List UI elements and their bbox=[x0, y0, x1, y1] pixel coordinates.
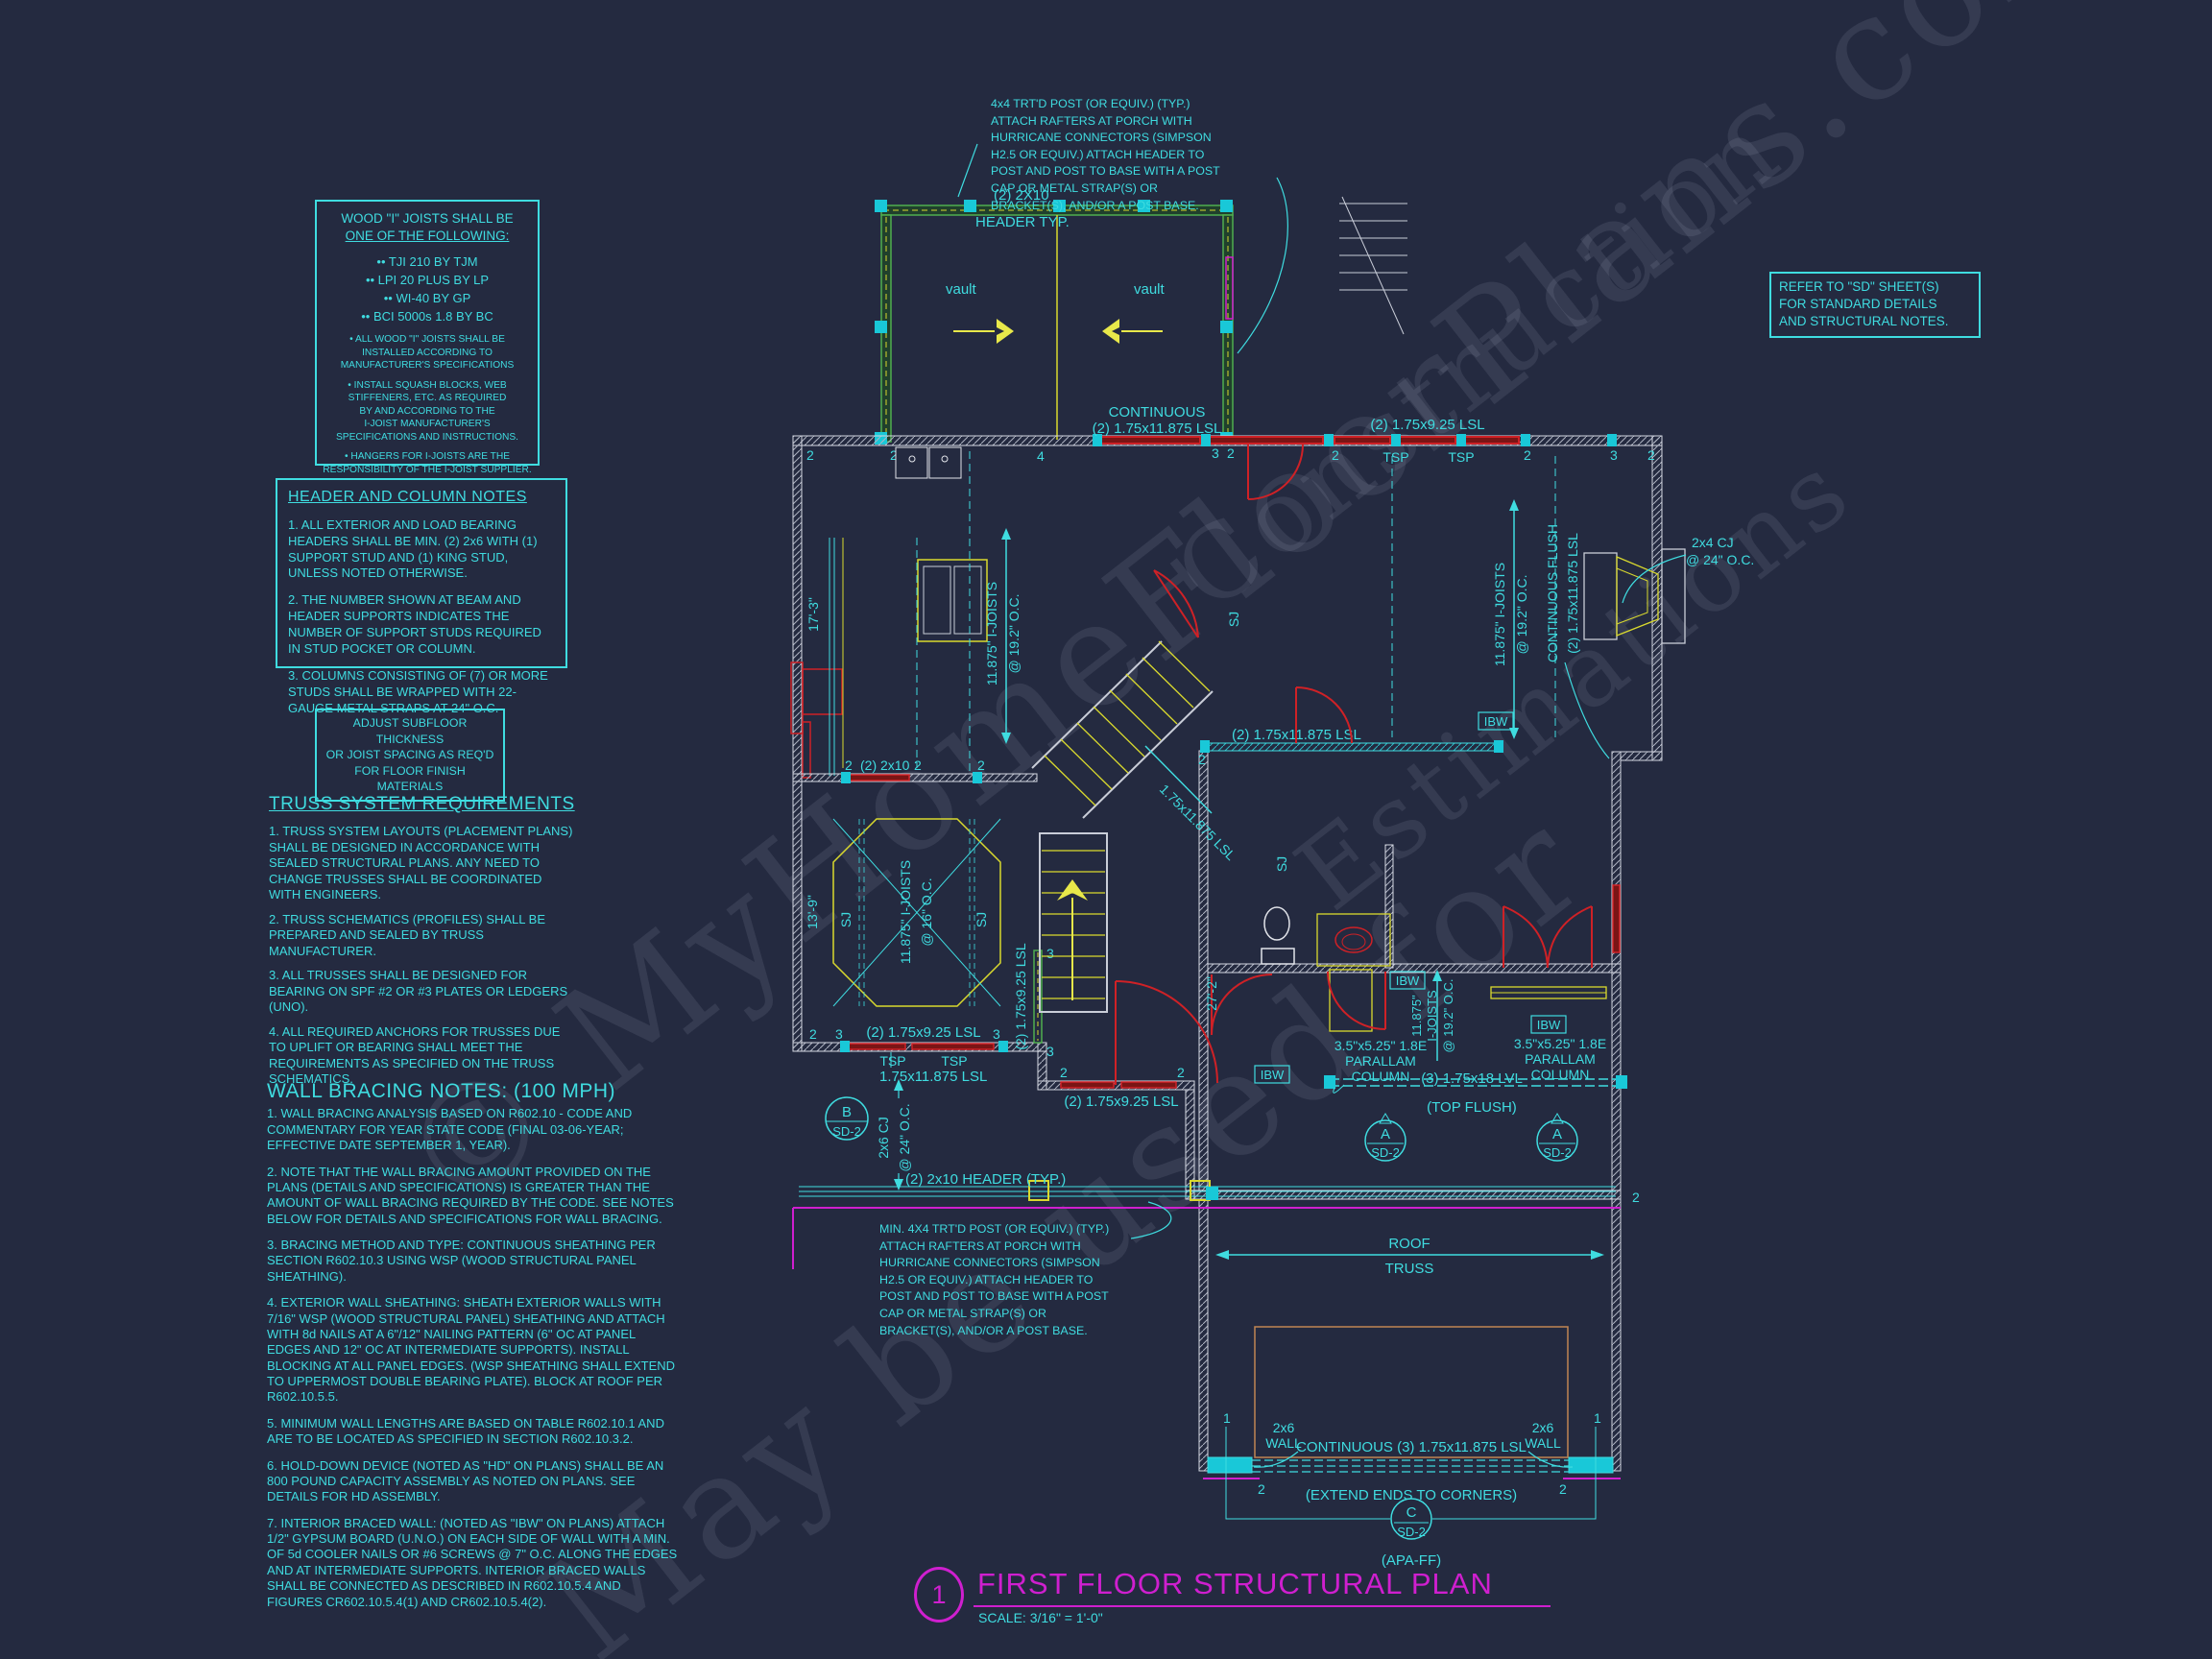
note-item: • INSTALL SQUASH BLOCKS, WEB STIFFENERS,… bbox=[321, 379, 534, 444]
header-label: (2) 2x10 bbox=[860, 757, 910, 773]
note-item: • ALL WOOD "I" JOISTS SHALL BE INSTALLED… bbox=[321, 333, 534, 372]
lsl-label: (2) 1.75x9.25 LSL bbox=[1370, 417, 1484, 433]
svg-text:SD-2: SD-2 bbox=[1371, 1145, 1400, 1160]
header-typ-label: (2) 2x10 HEADER (TYP.) bbox=[905, 1171, 1066, 1188]
svg-text:C: C bbox=[1407, 1504, 1417, 1521]
stud-count: 3 bbox=[993, 1026, 1000, 1042]
parallam-label: COLUMN bbox=[1531, 1067, 1590, 1082]
note-paragraph: 7. INTERIOR BRACED WALL: (NOTED AS "IBW"… bbox=[267, 1516, 678, 1610]
title-block: 1 FIRST FLOOR STRUCTURAL PLAN SCALE: 3/1… bbox=[914, 1567, 1551, 1625]
stud-count: 2 bbox=[1177, 1065, 1185, 1080]
svg-text:SD-2: SD-2 bbox=[832, 1124, 861, 1139]
note-paragraph: 4. ALL REQUIRED ANCHORS FOR TRUSSES DUE … bbox=[269, 1024, 576, 1088]
dim-13-9: 13'-9" bbox=[805, 895, 820, 929]
stud-count: 2 bbox=[1198, 752, 1206, 767]
wall-bracing-notes: WALL BRACING NOTES: (100 MPH) 1. WALL BR… bbox=[267, 1079, 678, 1621]
section-title: TRUSS SYSTEM REQUIREMENTS bbox=[269, 793, 576, 816]
note-paragraph: 6. HOLD-DOWN DEVICE (NOTED AS "HD" ON PL… bbox=[267, 1458, 678, 1505]
joist-spacing: @ 19.2" O.C. bbox=[1006, 594, 1022, 674]
joist-depth: 11.875" bbox=[1409, 995, 1424, 1037]
note-paragraph: 2. TRUSS SCHEMATICS (PROFILES) SHALL BE … bbox=[269, 912, 576, 960]
continuous-label: CONTINUOUS bbox=[1109, 404, 1206, 421]
joist-label: 11.875" I-JOISTS bbox=[898, 860, 913, 964]
stud-count: 2 bbox=[1060, 1065, 1068, 1080]
leader-line bbox=[1238, 178, 1287, 353]
ibw-label: IBW bbox=[1537, 1018, 1561, 1032]
stud-count: 2 bbox=[1559, 1481, 1567, 1497]
svg-text:3: 3 bbox=[1610, 447, 1618, 463]
note-paragraph: 1. ALL EXTERIOR AND LOAD BEARING HEADERS… bbox=[288, 517, 555, 583]
svg-text:3: 3 bbox=[1212, 445, 1219, 461]
kitchen-fixtures bbox=[896, 447, 987, 641]
tsp-label: TSP bbox=[941, 1053, 967, 1069]
parallam-label: 3.5"x5.25" 1.8E bbox=[1514, 1036, 1606, 1051]
stud-count: 2 bbox=[1258, 1481, 1265, 1497]
note-title: ONE OF THE FOLLOWING: bbox=[321, 228, 534, 245]
lvl-label: (3) 1.75x18 LVL bbox=[1421, 1070, 1523, 1087]
window bbox=[1613, 885, 1620, 952]
note-paragraph: 1. TRUSS SYSTEM LAYOUTS (PLACEMENT PLANS… bbox=[269, 824, 576, 903]
ibw-label: IBW bbox=[1396, 974, 1420, 988]
patio-slab bbox=[1255, 1327, 1568, 1457]
cj-spacing: @ 24" O.C. bbox=[897, 1103, 912, 1171]
note-paragraph: 5. MINIMUM WALL LENGTHS ARE BASED ON TAB… bbox=[267, 1416, 678, 1448]
sj-label: SJ bbox=[838, 912, 854, 927]
cj-label: 2x4 CJ bbox=[1692, 535, 1734, 550]
lsl-label: 1.75x11.875 LSL bbox=[1157, 781, 1239, 864]
cj-spacing: @ 24" O.C. bbox=[1686, 552, 1754, 567]
svg-text:2: 2 bbox=[1227, 445, 1235, 461]
parallam-label: 3.5"x5.25" 1.8E bbox=[1334, 1038, 1427, 1053]
note-paragraph: 3. ALL TRUSSES SHALL BE DESIGNED FOR BEA… bbox=[269, 968, 576, 1016]
blueprint-sheet: © MyHomeFloorPlans.com Construction Esti… bbox=[0, 0, 2212, 1659]
ibw-label: IBW bbox=[1261, 1068, 1285, 1082]
cj-label: 2x6 CJ bbox=[876, 1117, 891, 1159]
bearing-wall-bottomleft: (2) 1.75x9.25 LSL TSP TSP 2 3 3 1.75x11.… bbox=[809, 1024, 1008, 1085]
porch-post-note-top: 4x4 TRT'D POST (OR EQUIV.) (TYP.) ATTACH… bbox=[991, 96, 1242, 214]
svg-text:2: 2 bbox=[1647, 447, 1655, 463]
stud-count: 1 bbox=[1223, 1410, 1231, 1426]
plan-number: 1 bbox=[931, 1580, 946, 1610]
svg-text:2: 2 bbox=[1332, 447, 1339, 463]
wood-joist-note: WOOD "I" JOISTS SHALL BE ONE OF THE FOLL… bbox=[315, 200, 540, 466]
stud-count: 3 bbox=[1046, 1044, 1054, 1059]
wall-2x6-label: 2x6 bbox=[1273, 1420, 1295, 1435]
callout-C: C SD-2 bbox=[1391, 1499, 1431, 1539]
tsp-label: TSP bbox=[1382, 449, 1408, 465]
callout-A-left: A SD-2 bbox=[1365, 1114, 1406, 1161]
stud-count: 2 bbox=[977, 757, 985, 773]
vault-label-left: vault bbox=[946, 281, 977, 298]
note-paragraph: 2. NOTE THAT THE WALL BRACING AMOUNT PRO… bbox=[267, 1165, 678, 1228]
parallam-label: COLUMN bbox=[1352, 1069, 1410, 1084]
svg-text:2: 2 bbox=[1524, 447, 1531, 463]
page-title: FIRST FLOOR STRUCTURAL PLAN bbox=[974, 1567, 1551, 1607]
ibw-label: IBW bbox=[1484, 714, 1508, 729]
note-paragraph: 1. WALL BRACING ANALYSIS BASED ON R602.1… bbox=[267, 1106, 678, 1153]
extend-label: (EXTEND ENDS TO CORNERS) bbox=[1306, 1487, 1517, 1503]
porch-post-note-bottom: MIN. 4X4 TRT'D POST (OR EQUIV.) (TYP.) A… bbox=[879, 1221, 1167, 1339]
header-typ-label: HEADER TYP. bbox=[975, 214, 1070, 230]
note-item: • HANGERS FOR I-JOISTS ARE THE RESPONSIB… bbox=[321, 450, 534, 476]
note-paragraph: 3. BRACING METHOD AND TYPE: CONTINUOUS S… bbox=[267, 1238, 678, 1285]
vault-arrow-left bbox=[1102, 319, 1163, 344]
lsl-label: (2) 1.75x9.25 LSL bbox=[1064, 1094, 1178, 1110]
svg-text:A: A bbox=[1552, 1126, 1562, 1142]
stud-count: 2 bbox=[809, 1026, 817, 1042]
vertical-beam: (2) 1.75x9.25 LSL 3 3 bbox=[1013, 943, 1054, 1059]
lsl-label: (2) 1.75x9.25 LSL bbox=[1013, 943, 1028, 1050]
header-column-notes: HEADER AND COLUMN NOTES 1. ALL EXTERIOR … bbox=[276, 478, 567, 668]
svg-text:SD-2: SD-2 bbox=[1543, 1145, 1572, 1160]
stud-count: 2 bbox=[845, 757, 853, 773]
toilet bbox=[1264, 907, 1289, 940]
vault-arrow-right bbox=[953, 319, 1014, 344]
svg-text:A: A bbox=[1381, 1126, 1390, 1142]
stud-count: 2 bbox=[914, 757, 922, 773]
joist-word: I-JOISTS bbox=[1425, 990, 1439, 1042]
svg-text:2: 2 bbox=[806, 447, 814, 463]
lsl-label: (2) 1.75x9.25 LSL bbox=[866, 1024, 980, 1041]
svg-text:4: 4 bbox=[1037, 448, 1045, 464]
sd-sheet-note: REFER TO "SD" SHEET(S) FOR STANDARD DETA… bbox=[1769, 272, 1981, 338]
lsl-label: (2) 1.75x11.875 LSL bbox=[1093, 421, 1222, 437]
tsp-label: TSP bbox=[1448, 449, 1474, 465]
leader-line bbox=[958, 144, 977, 197]
vault-label-right: vault bbox=[1134, 281, 1166, 298]
truss-requirements: TRUSS SYSTEM REQUIREMENTS 1. TRUSS SYSTE… bbox=[269, 793, 576, 1096]
joist-label: 11.875" I-JOISTS bbox=[1492, 563, 1507, 666]
roof-label: ROOF bbox=[1388, 1236, 1430, 1252]
callout-B: B SD-2 bbox=[826, 1097, 868, 1140]
note-paragraph: 4. EXTERIOR WALL SHEATHING: SHEATH EXTER… bbox=[267, 1295, 678, 1406]
plan-scale: SCALE: 3/16" = 1'-0" bbox=[974, 1610, 1551, 1625]
dim-17-3: 17'-3" bbox=[805, 597, 821, 632]
joist-spacing: @ 16" O.C. bbox=[919, 878, 934, 946]
sj-label: SJ bbox=[974, 912, 989, 927]
stud-count: 1 bbox=[1594, 1410, 1601, 1426]
sj-label: SJ bbox=[1274, 856, 1289, 872]
lsl-label: (2) 1.75x11.875 LSL bbox=[1565, 533, 1580, 654]
joist-products-list: •• TJI 210 BY TJM •• LPI 20 PLUS BY LP •… bbox=[321, 253, 534, 325]
continuous-lsl-label: CONTINUOUS (3) 1.75x11.875 LSL bbox=[1296, 1439, 1527, 1455]
rear-porch: ROOF TRUSS 2x6 WALL 2x6 WALL CONTINUOUS … bbox=[1203, 1236, 1621, 1569]
section-title: WALL BRACING NOTES: (100 MPH) bbox=[267, 1079, 678, 1104]
continuous-flush-label: CONTINUOUS FLUSH bbox=[1545, 524, 1560, 662]
note-paragraph: 2. THE NUMBER SHOWN AT BEAM AND HEADER S… bbox=[288, 592, 555, 658]
joist-label: 11.875" I-JOISTS bbox=[984, 582, 999, 685]
stud-count: 3 bbox=[1046, 946, 1054, 961]
section-title: HEADER AND COLUMN NOTES bbox=[288, 488, 555, 508]
stud-count: 3 bbox=[835, 1026, 843, 1042]
top-flush-label: (TOP FLUSH) bbox=[1427, 1099, 1517, 1116]
svg-text:B: B bbox=[842, 1104, 852, 1120]
subfloor-note: ADJUST SUBFLOOR THICKNESS OR JOIST SPACI… bbox=[315, 709, 505, 802]
joist-spacing: @ 19.2" O.C. bbox=[1441, 978, 1455, 1052]
lsl-label: 1.75x11.875 LSL bbox=[879, 1069, 987, 1085]
dim-27-2: 27'-2" bbox=[1204, 976, 1219, 1011]
parallam-label: PARALLAM bbox=[1525, 1051, 1596, 1067]
svg-text:SD-2: SD-2 bbox=[1397, 1525, 1426, 1539]
sj-label: SJ bbox=[1226, 612, 1241, 627]
joist-spacing: @ 19.2" O.C. bbox=[1514, 575, 1529, 655]
tsp-label: TSP bbox=[879, 1053, 905, 1069]
callout-A-right: A SD-2 bbox=[1537, 1114, 1577, 1161]
stud-count: 2 bbox=[1632, 1190, 1640, 1205]
truss-label: TRUSS bbox=[1385, 1261, 1434, 1277]
wall-2x6-label: 2x6 bbox=[1532, 1420, 1554, 1435]
parallam-label: PARALLAM bbox=[1345, 1053, 1416, 1069]
plan-number-bubble: 1 bbox=[914, 1567, 964, 1623]
wall-2x6-label: WALL bbox=[1525, 1435, 1561, 1451]
note-title: WOOD "I" JOISTS SHALL BE bbox=[321, 210, 534, 228]
